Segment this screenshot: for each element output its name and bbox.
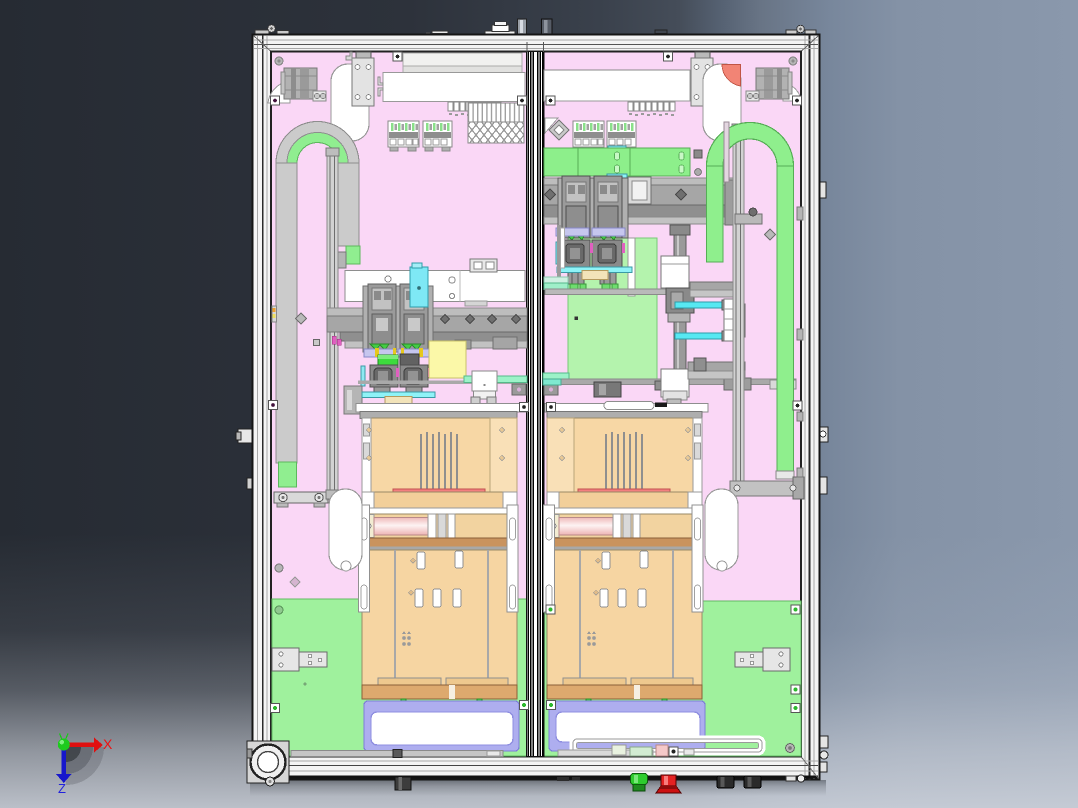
- svg-text:Z: Z: [58, 781, 66, 796]
- svg-text:X: X: [103, 736, 113, 752]
